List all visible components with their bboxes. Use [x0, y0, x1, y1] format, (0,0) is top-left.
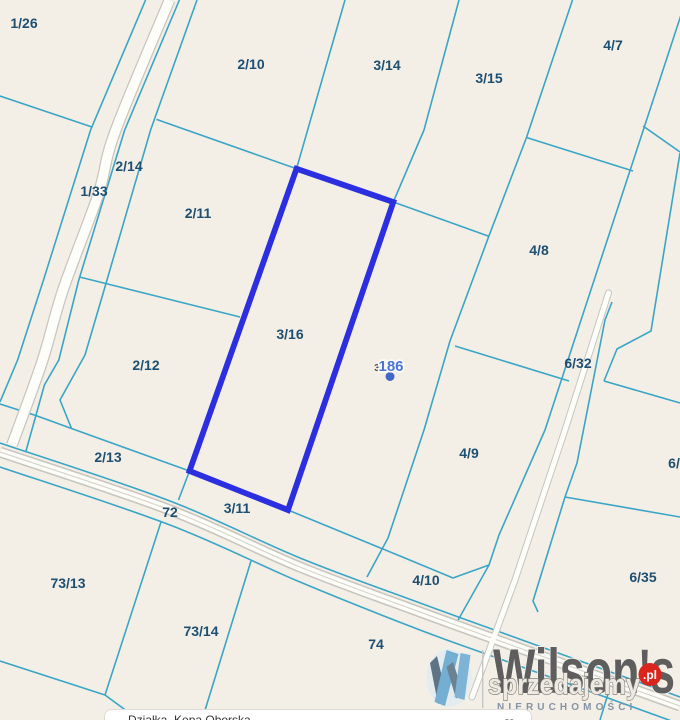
- svg-text:72: 72: [162, 504, 178, 520]
- svg-text:4/10: 4/10: [412, 572, 439, 588]
- svg-text:74: 74: [368, 636, 384, 652]
- svg-text:1/26: 1/26: [10, 15, 37, 31]
- svg-text:4/9: 4/9: [459, 445, 479, 461]
- svg-text:Działka, Kępa Oborska: Działka, Kępa Oborska: [128, 713, 251, 720]
- svg-text:3/14: 3/14: [373, 57, 400, 73]
- svg-text:6/35: 6/35: [629, 569, 656, 585]
- svg-text:3/11: 3/11: [224, 500, 251, 516]
- svg-text:6/: 6/: [668, 455, 680, 471]
- svg-text:6/32: 6/32: [564, 355, 591, 371]
- svg-text:4/7: 4/7: [603, 37, 623, 53]
- svg-text:2/13: 2/13: [94, 449, 121, 465]
- svg-text:.pl: .pl: [643, 668, 657, 682]
- svg-text:∞: ∞: [504, 713, 515, 720]
- svg-text:3/16: 3/16: [276, 326, 303, 342]
- svg-text:73/13: 73/13: [50, 575, 85, 591]
- svg-text:2/11: 2/11: [185, 205, 212, 221]
- svg-text:73/14: 73/14: [183, 623, 218, 639]
- svg-text:3/15: 3/15: [475, 70, 502, 86]
- svg-text:1/33: 1/33: [80, 183, 107, 199]
- svg-text:2/10: 2/10: [237, 56, 264, 72]
- svg-text:2/14: 2/14: [115, 158, 142, 174]
- svg-text:2/12: 2/12: [132, 357, 159, 373]
- svg-text:4/8: 4/8: [529, 242, 549, 258]
- svg-text:sprzedajemy: sprzedajemy: [488, 669, 640, 701]
- svg-text:186: 186: [378, 358, 403, 375]
